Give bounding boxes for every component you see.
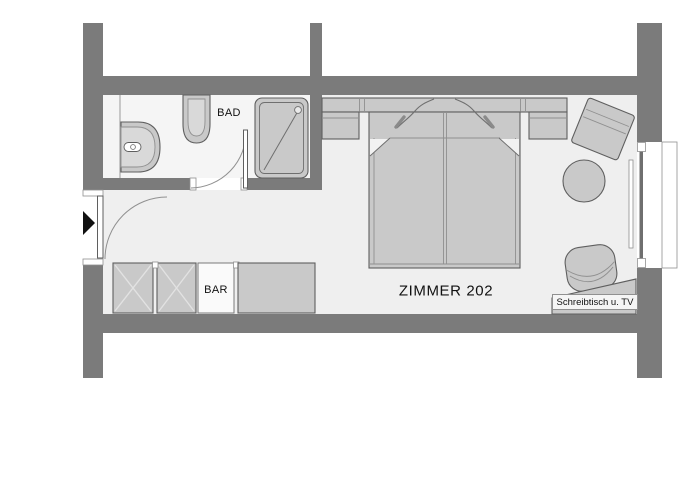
minibar-label: BAR — [204, 284, 228, 296]
bathroom-right-wall — [310, 95, 322, 190]
entrance-arrow-icon — [83, 211, 95, 235]
window-glass-line — [640, 149, 644, 263]
bathroom-bottom-wall-right — [247, 178, 310, 190]
shower-drain — [295, 107, 302, 114]
top-wall — [83, 76, 662, 95]
entry-jamb-bottom — [83, 259, 103, 265]
window-frame-bottom — [638, 259, 646, 268]
sideboard — [238, 263, 315, 313]
bathroom-label: BAD — [217, 107, 241, 119]
room-number-label: ZIMMER 202 — [399, 283, 493, 300]
entrance-door-leaf — [98, 196, 104, 258]
top-wall-stub — [310, 23, 322, 76]
window-frame-top — [638, 143, 646, 152]
toilet — [183, 95, 210, 143]
wardrobe-connector-1 — [153, 262, 159, 268]
left-wall-upper — [83, 23, 103, 196]
washbasin — [121, 122, 160, 172]
floorplan-drawing — [0, 0, 700, 500]
bathroom-door-leaf — [244, 130, 248, 188]
shower — [255, 98, 308, 178]
bathroom-bottom-wall-left — [83, 178, 190, 190]
mattress — [369, 112, 520, 268]
headboard-shelf — [322, 98, 567, 112]
floorplan-canvas: BAD BAR ZIMMER 202 Schreibtisch u. TV — [0, 0, 700, 500]
bottom-wall — [103, 314, 662, 333]
right-wall-upper — [637, 23, 662, 142]
desk-label: Schreibtisch u. TV — [552, 294, 638, 310]
round-table — [563, 160, 605, 202]
window-inner-sill — [629, 160, 633, 248]
toilet-bowl — [188, 99, 205, 136]
left-wall-lower — [83, 259, 103, 378]
nightstand-left — [322, 112, 359, 139]
nightstand-right — [529, 112, 567, 139]
entry-jamb-top — [83, 190, 103, 196]
window-outer-sill — [662, 142, 677, 268]
washbasin-faucet — [124, 143, 141, 152]
